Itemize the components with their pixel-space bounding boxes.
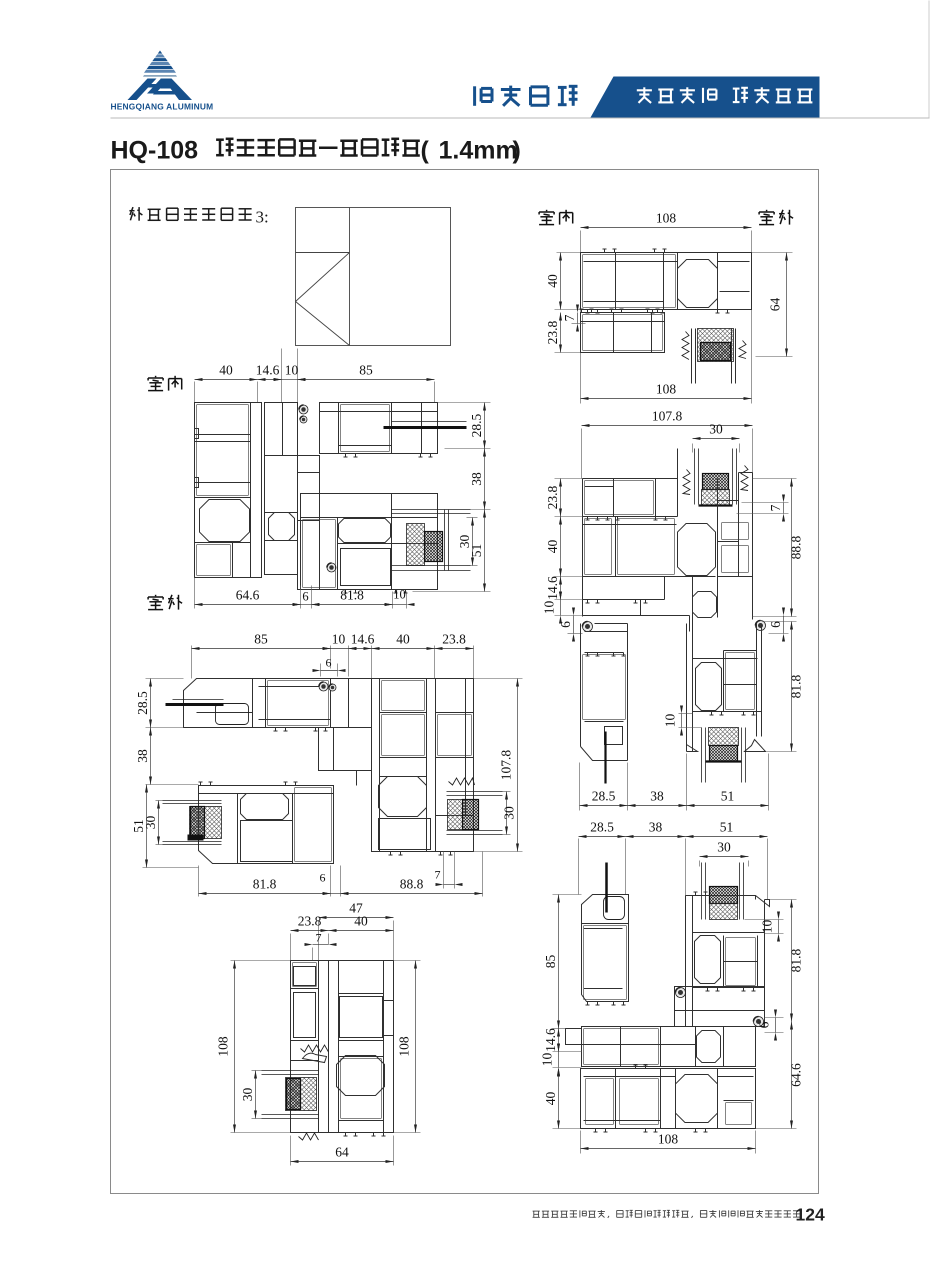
svg-text:7: 7 <box>768 504 783 511</box>
svg-text:10: 10 <box>285 363 299 378</box>
svg-text:10: 10 <box>760 920 775 934</box>
svg-text:(: ( <box>421 137 430 165</box>
svg-text:51: 51 <box>721 789 735 804</box>
svg-text:40: 40 <box>545 540 560 554</box>
svg-text:14.6: 14.6 <box>351 632 375 647</box>
svg-text:108: 108 <box>658 1132 679 1147</box>
svg-text:64.6: 64.6 <box>789 1063 804 1087</box>
svg-text:10: 10 <box>393 588 406 602</box>
svg-text:6: 6 <box>326 656 332 670</box>
svg-text:38: 38 <box>649 820 663 835</box>
svg-text:3:: 3: <box>256 208 269 227</box>
svg-text:40: 40 <box>543 1092 558 1106</box>
svg-text:108: 108 <box>397 1036 412 1057</box>
svg-text:107.8: 107.8 <box>499 750 514 781</box>
svg-text:6: 6 <box>302 590 308 604</box>
svg-text:81.8: 81.8 <box>340 588 364 603</box>
svg-text:30: 30 <box>457 535 472 549</box>
svg-text:40: 40 <box>545 274 560 288</box>
svg-text:14.6: 14.6 <box>543 1028 558 1052</box>
svg-text:38: 38 <box>135 749 150 763</box>
svg-text:10: 10 <box>540 1053 555 1067</box>
svg-text:HQ-108: HQ-108 <box>111 137 199 165</box>
svg-text:108: 108 <box>216 1036 231 1057</box>
svg-text:10: 10 <box>663 714 678 728</box>
svg-text:1.4mm: 1.4mm <box>439 137 518 165</box>
svg-text:6: 6 <box>757 1021 772 1028</box>
svg-text:7: 7 <box>562 314 577 321</box>
svg-text:51: 51 <box>131 819 146 833</box>
svg-text:6: 6 <box>768 621 783 628</box>
svg-text:23.8: 23.8 <box>545 485 560 509</box>
svg-text:28.5: 28.5 <box>592 789 616 804</box>
svg-text:30: 30 <box>717 840 731 855</box>
svg-text:40: 40 <box>219 363 233 378</box>
svg-text:107.8: 107.8 <box>652 409 683 424</box>
svg-text:30: 30 <box>709 422 723 437</box>
svg-text:7: 7 <box>435 868 441 882</box>
svg-text:6: 6 <box>320 871 326 885</box>
svg-text:HENGQIANG ALUMINUM: HENGQIANG ALUMINUM <box>111 102 214 112</box>
svg-text:85: 85 <box>359 363 373 378</box>
svg-text:10: 10 <box>542 601 557 615</box>
svg-text:6: 6 <box>558 621 573 628</box>
svg-text:23.8: 23.8 <box>298 914 322 929</box>
svg-text:23.8: 23.8 <box>442 632 466 647</box>
svg-text:): ) <box>513 137 521 165</box>
svg-text:30: 30 <box>240 1088 255 1102</box>
svg-text:14.6: 14.6 <box>256 363 280 378</box>
svg-text:10: 10 <box>332 632 346 647</box>
svg-text:81.8: 81.8 <box>789 674 804 698</box>
svg-text:124: 124 <box>796 1205 825 1225</box>
svg-text:64: 64 <box>335 1145 349 1160</box>
svg-text:88.8: 88.8 <box>789 535 804 559</box>
svg-text:23.8: 23.8 <box>545 320 560 344</box>
svg-text:108: 108 <box>656 211 677 226</box>
svg-text:81.8: 81.8 <box>253 877 277 892</box>
svg-text:51: 51 <box>720 820 734 835</box>
svg-text:81.8: 81.8 <box>789 948 804 972</box>
svg-text:64.6: 64.6 <box>236 588 260 603</box>
svg-text:38: 38 <box>469 472 484 486</box>
svg-text:64: 64 <box>768 298 783 312</box>
svg-text:30: 30 <box>502 806 517 820</box>
svg-text:14.6: 14.6 <box>545 576 560 600</box>
svg-text:85: 85 <box>543 955 558 969</box>
svg-text:28.5: 28.5 <box>135 691 150 715</box>
svg-text:28.5: 28.5 <box>469 413 484 437</box>
svg-text:38: 38 <box>650 789 664 804</box>
svg-text:85: 85 <box>254 632 268 647</box>
svg-text:40: 40 <box>396 632 410 647</box>
svg-text:40: 40 <box>354 914 368 929</box>
svg-text:88.8: 88.8 <box>400 877 424 892</box>
svg-text:108: 108 <box>656 382 677 397</box>
svg-text:7: 7 <box>316 931 322 945</box>
svg-text:28.5: 28.5 <box>590 820 614 835</box>
